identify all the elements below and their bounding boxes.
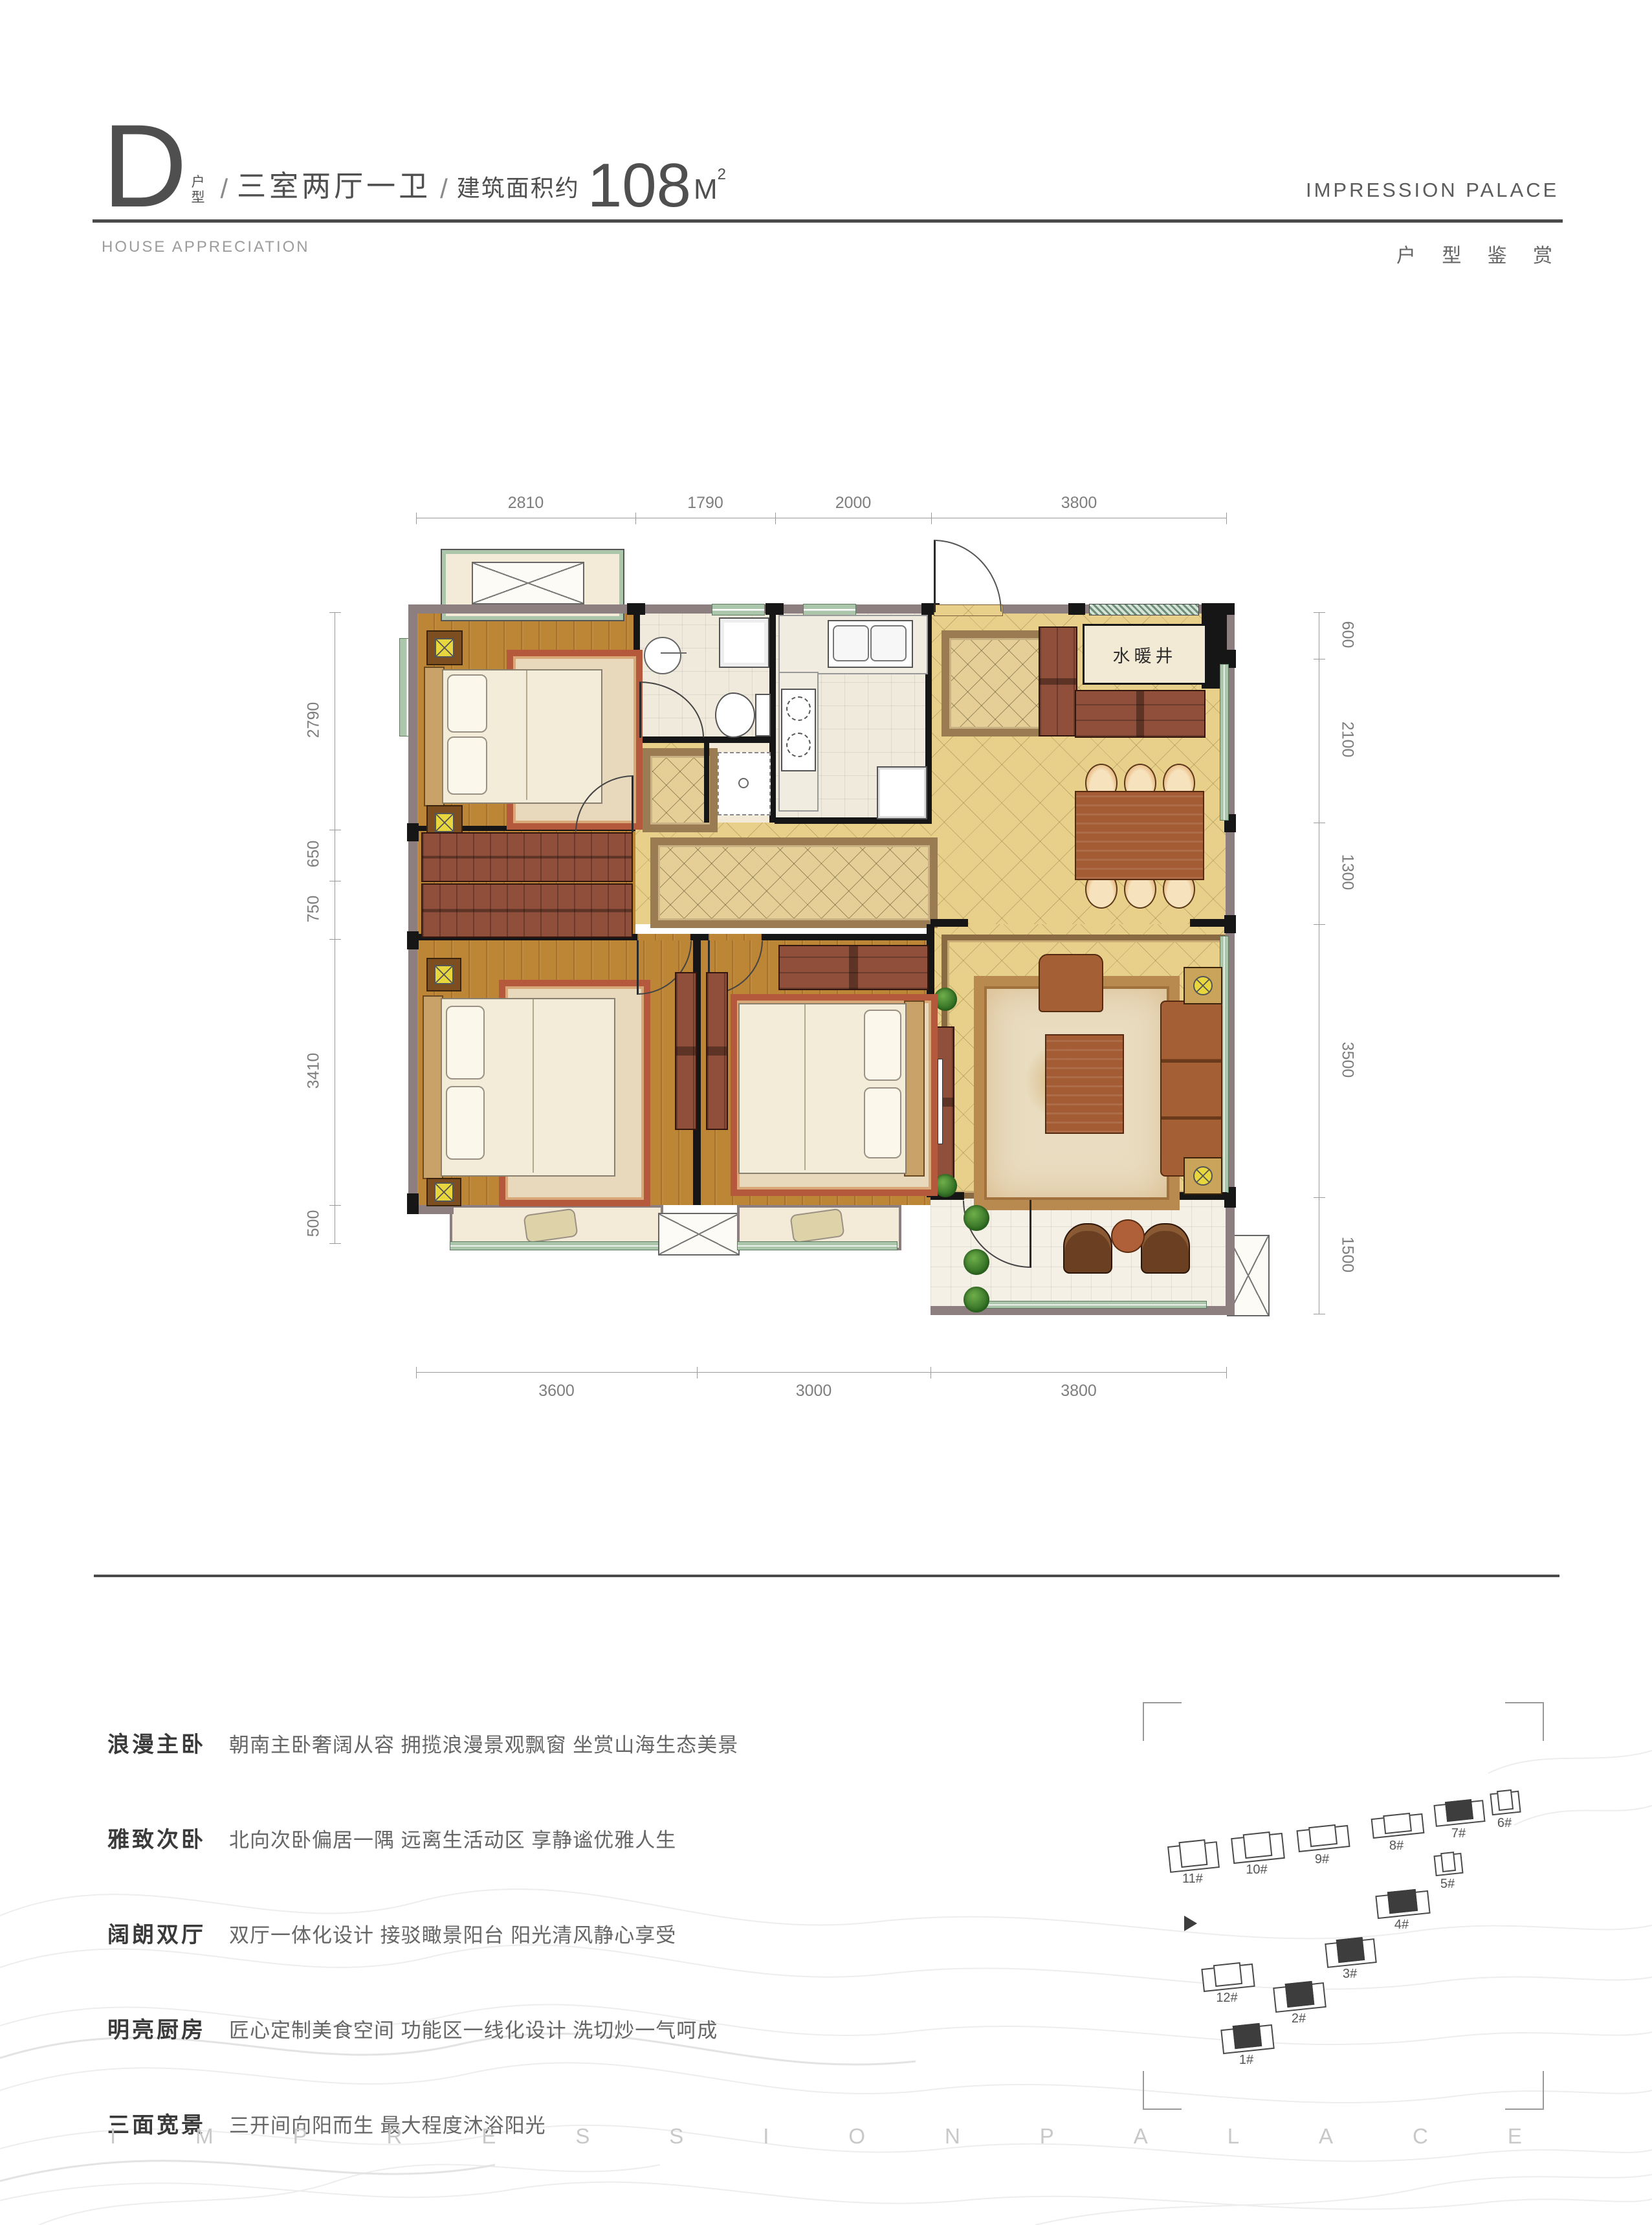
site-building-label: 1# [1220, 2053, 1272, 2068]
watermark-letter: A [1134, 2124, 1148, 2149]
balcony-chair [1141, 1223, 1190, 1274]
side-table-lamp [1184, 967, 1222, 1004]
watermark-letter: M [195, 2124, 214, 2149]
master-pillow [447, 736, 487, 795]
hall-door-panel [706, 972, 728, 1130]
dim-label: 2810 [416, 494, 635, 513]
dim-label: 3000 [697, 1382, 931, 1400]
dimension-line-left: 2790 650 750 3410 500 [335, 612, 335, 1244]
building-core [1308, 1824, 1338, 1847]
dim-label: 2790 [305, 685, 324, 756]
watermark-letter: I [763, 2124, 769, 2149]
site-building-11 [1167, 1841, 1220, 1873]
dim-tick [329, 1205, 341, 1206]
site-building-8 [1371, 1813, 1425, 1839]
area-value: 108 [588, 161, 691, 211]
dim-tick [635, 513, 636, 524]
site-building-2 [1273, 1982, 1327, 2013]
dim-label: 3800 [931, 494, 1227, 513]
entry-inlay-rug [942, 630, 1049, 736]
master-blanket-line [526, 670, 527, 800]
dim-tick [1226, 1367, 1227, 1378]
bedroom2-pillow [446, 1086, 485, 1160]
bathroom-window [712, 604, 765, 615]
lamp-icon [1193, 976, 1213, 995]
watermark-letter: S [669, 2124, 683, 2149]
bedroom2-bay-glass [450, 1241, 659, 1250]
master-pillow [447, 674, 487, 733]
feature-row: 浪漫主卧 朝南主卧奢阔从容 拥揽浪漫景观飘窗 坐赏山海生态美景 [107, 1727, 738, 1758]
dim-tick [329, 939, 341, 940]
dim-label: 1300 [1338, 837, 1357, 908]
wall-pier [407, 1193, 419, 1214]
dim-label: 600 [1338, 599, 1357, 670]
feature-desc: 匠心定制美食空间 功能区一线化设计 洗切炒一气呵成 [229, 2014, 718, 2043]
tv-icon [938, 1059, 943, 1144]
floor-plan: 水暖井 [416, 612, 1227, 1315]
bedroom2-blanket-line [533, 999, 534, 1173]
bedroom2-pillow [446, 1006, 485, 1079]
coffee-table [1045, 1034, 1124, 1134]
site-building-label: 10# [1231, 1863, 1283, 1877]
dim-label: 1790 [635, 494, 775, 513]
vanity-faucet-icon [738, 778, 749, 788]
shower-arm [661, 652, 687, 654]
building-core [1242, 1831, 1272, 1858]
building-core [1497, 1789, 1514, 1811]
brand-name: IMPRESSION PALACE [1306, 179, 1559, 202]
area-superscript: 2 [718, 166, 726, 184]
dining-cabinet-vertical [1039, 626, 1077, 736]
master-nightstand [426, 630, 463, 665]
feature-row: 明亮厨房 匠心定制美食空间 功能区一线化设计 洗切炒一气呵成 [107, 2012, 738, 2044]
dim-tick [416, 513, 417, 524]
toilet-tank [755, 694, 771, 736]
dim-tick [1314, 823, 1325, 823]
wall-stub-living-left [931, 919, 968, 927]
dim-label: 2000 [775, 494, 931, 513]
dim-label: 3410 [305, 1035, 324, 1107]
side-table-lamp [1184, 1157, 1222, 1195]
bedroom3-pillow [864, 1010, 901, 1081]
area-unit: M [694, 173, 718, 206]
dim-label: 500 [305, 1188, 324, 1259]
dim-tick [775, 513, 776, 524]
dim-label: 3800 [931, 1382, 1227, 1400]
watermark-letter: R [387, 2124, 402, 2149]
site-building-5 [1433, 1853, 1463, 1876]
site-building-label: 7# [1433, 1826, 1484, 1841]
feature-label: 雅致次卧 [107, 1822, 229, 1854]
site-building-1 [1220, 2024, 1275, 2054]
section-divider-line [94, 1575, 1559, 1577]
dim-tick [329, 881, 341, 881]
dim-label: 1500 [1338, 1219, 1357, 1290]
watermark-letter: P [1040, 2124, 1054, 2149]
bedroom2-nightstand [426, 958, 461, 991]
sitemap-corner-bracket [1505, 2071, 1544, 2110]
building-core [1440, 1852, 1457, 1872]
slash-divider: / [220, 173, 228, 205]
dim-label: 750 [305, 874, 324, 945]
site-building-label: 12# [1201, 1991, 1253, 2006]
watermark-letter: O [848, 2124, 865, 2149]
lamp-icon [435, 813, 454, 832]
washing-machine [719, 617, 769, 668]
bedroom3-pillow [864, 1087, 901, 1158]
feature-row: 雅致次卧 北向次卧偏居一隅 远离生活动区 享静谧优雅人生 [107, 1822, 738, 1854]
balcony-glass-rail [966, 1301, 1207, 1309]
dim-tick [697, 1367, 698, 1378]
watermark-letter: S [575, 2124, 589, 2149]
plant-icon [964, 1205, 989, 1231]
site-building-label: 11# [1167, 1872, 1218, 1887]
footer-watermark: I M P R E S S I O N P A L A C E [110, 2124, 1522, 2149]
site-building-4 [1375, 1890, 1430, 1919]
master-top-bay-platform [472, 562, 584, 604]
watermark-letter: N [945, 2124, 960, 2149]
bedroom3-headboard [904, 1001, 925, 1177]
dim-label: 3600 [416, 1382, 697, 1400]
utility-shaft: 水暖井 [1083, 624, 1207, 685]
building-core [1179, 1839, 1208, 1867]
unit-type-suffix-bottom: 型 [191, 190, 204, 206]
bedroom3-wardrobe [778, 945, 929, 990]
unit-layout-text: 三室两厅一卫 [237, 162, 431, 205]
dim-tick [416, 1367, 417, 1378]
bedroom2-nightstand [426, 1178, 461, 1206]
dim-tick [931, 1367, 931, 1378]
sofa [1160, 1001, 1222, 1177]
feature-row: 阔朗双厅 双厅一体化设计 接驳瞰景阳台 阳光清风静心享受 [107, 1917, 738, 1949]
building-core [1284, 1981, 1314, 2008]
subtitle-english: HOUSE APPRECIATION [102, 238, 310, 256]
header-divider-line [93, 219, 1563, 223]
armchair [1039, 954, 1103, 1012]
wall-vanity-left [704, 743, 709, 823]
slash-divider: / [440, 173, 448, 205]
building-core [1336, 1937, 1365, 1963]
site-building-3 [1325, 1938, 1377, 1968]
bedroom2-door-opening [637, 934, 690, 940]
feature-desc: 双厅一体化设计 接驳瞰景阳台 阳光清风静心享受 [229, 1919, 676, 1948]
dining-cabinet-horizontal [1075, 690, 1206, 738]
feature-label: 阔朗双厅 [107, 1917, 229, 1949]
feature-label: 浪漫主卧 [107, 1727, 229, 1758]
watermark-letter: A [1319, 2124, 1333, 2149]
bedroom3-door-opening [709, 934, 762, 940]
building-core [1445, 1799, 1473, 1822]
unit-type-letter: D [102, 120, 187, 212]
lamp-icon [434, 1182, 454, 1202]
dim-tick [1314, 612, 1325, 613]
watermark-letter: C [1413, 2124, 1428, 2149]
dim-tick [1314, 924, 1325, 925]
dim-tick [329, 1243, 341, 1244]
refrigerator [877, 766, 927, 819]
lamp-icon [435, 638, 454, 658]
site-building-12 [1201, 1964, 1255, 1992]
balcony-chair [1063, 1223, 1112, 1274]
watermark-letter: E [481, 2124, 496, 2149]
dim-tick [931, 513, 932, 524]
site-building-label: 2# [1273, 2011, 1325, 2026]
unit-type-suffix-top: 户 [191, 175, 204, 190]
sitemap-corner-bracket [1143, 2071, 1182, 2110]
kitchen-sink-basin [870, 625, 907, 661]
dining-side-window [1220, 664, 1229, 821]
building-core [1383, 1813, 1412, 1834]
site-building-9 [1296, 1825, 1350, 1852]
stove-burner-icon [786, 733, 811, 757]
watermark-letter: L [1228, 2124, 1239, 2149]
shower-icon [644, 637, 681, 674]
site-building-6 [1490, 1791, 1521, 1816]
watermark-letter: P [293, 2124, 307, 2149]
subtitle-chinese: 户 型 鉴 赏 [1365, 239, 1563, 268]
bedroom3-blanket-line [804, 1004, 806, 1170]
site-building-label: 5# [1422, 1877, 1473, 1892]
sitemap-corner-bracket [1505, 1702, 1544, 1741]
feature-desc: 北向次卧偏居一隅 远离生活动区 享静谧优雅人生 [229, 1824, 676, 1853]
dim-tick [1314, 1197, 1325, 1198]
entry-top-screen-window [1089, 604, 1199, 615]
kitchen-window [803, 604, 856, 615]
watermark-letter: I [110, 2124, 116, 2149]
balcony-table [1111, 1219, 1145, 1253]
bedroom2-wardrobe [421, 883, 633, 938]
sitemap-corner-bracket [1143, 1702, 1182, 1741]
lamp-icon [1193, 1166, 1213, 1186]
site-pointer-icon [1184, 1916, 1197, 1931]
kitchen-sink-basin [833, 625, 869, 661]
plant-icon [964, 1287, 989, 1312]
feature-label: 明亮厨房 [107, 2012, 229, 2044]
master-wardrobe [421, 832, 633, 882]
unit-type-suffix: 户 型 [191, 175, 204, 206]
middle-ac-platform [658, 1213, 740, 1256]
building-core [1232, 2023, 1262, 2049]
corridor-inlay-rug [650, 837, 938, 928]
site-building-10 [1231, 1833, 1285, 1864]
lamp-icon [434, 965, 454, 984]
building-core [1387, 1889, 1418, 1914]
dim-label: 3500 [1338, 1024, 1357, 1096]
utility-shaft-label: 水暖井 [1113, 642, 1177, 667]
dim-label: 2100 [1338, 704, 1357, 775]
area-prefix: 建筑面积约 [457, 170, 580, 203]
entry-door-swing [934, 540, 1002, 612]
plant-icon [964, 1249, 989, 1275]
wall-left [408, 604, 417, 1213]
site-map: 11# 10# 9# 8# 7# 6# 5# 4# 3# 2# 1# 12# [1143, 1702, 1544, 2110]
wall-pier [1068, 603, 1085, 615]
site-building-label: 9# [1296, 1852, 1348, 1867]
stove-burner-icon [786, 696, 811, 721]
dim-tick [329, 830, 341, 830]
feature-desc: 朝南主卧奢阔从容 拥揽浪漫景观飘窗 坐赏山海生态美景 [229, 1729, 738, 1758]
building-core [1213, 1962, 1243, 1987]
bedroom3-bay-glass [737, 1241, 898, 1250]
dimension-line-bottom: 3600 3000 3800 [416, 1372, 1227, 1373]
dim-tick [1226, 513, 1227, 524]
watermark-letter: E [1508, 2124, 1522, 2149]
site-building-label: 3# [1324, 1967, 1376, 1982]
header-title-group: D 户 型 / 三室两厅一卫 / 建筑面积约 108 M 2 [102, 120, 726, 212]
site-building-7 [1433, 1800, 1485, 1827]
dim-tick [329, 612, 341, 613]
dim-tick [1314, 659, 1325, 659]
site-building-label: 4# [1376, 1918, 1427, 1932]
wall-stub-living-right [1190, 919, 1227, 927]
dimension-line-right: 600 2100 1300 3500 1500 [1319, 612, 1319, 1314]
hall-door-panel [675, 972, 697, 1130]
site-building-label: 8# [1371, 1839, 1422, 1854]
dimension-line-top: 2810 1790 2000 3800 [416, 518, 1227, 518]
dim-tick [1314, 1314, 1325, 1314]
site-building-label: 6# [1479, 1816, 1530, 1831]
dining-table [1075, 791, 1204, 880]
